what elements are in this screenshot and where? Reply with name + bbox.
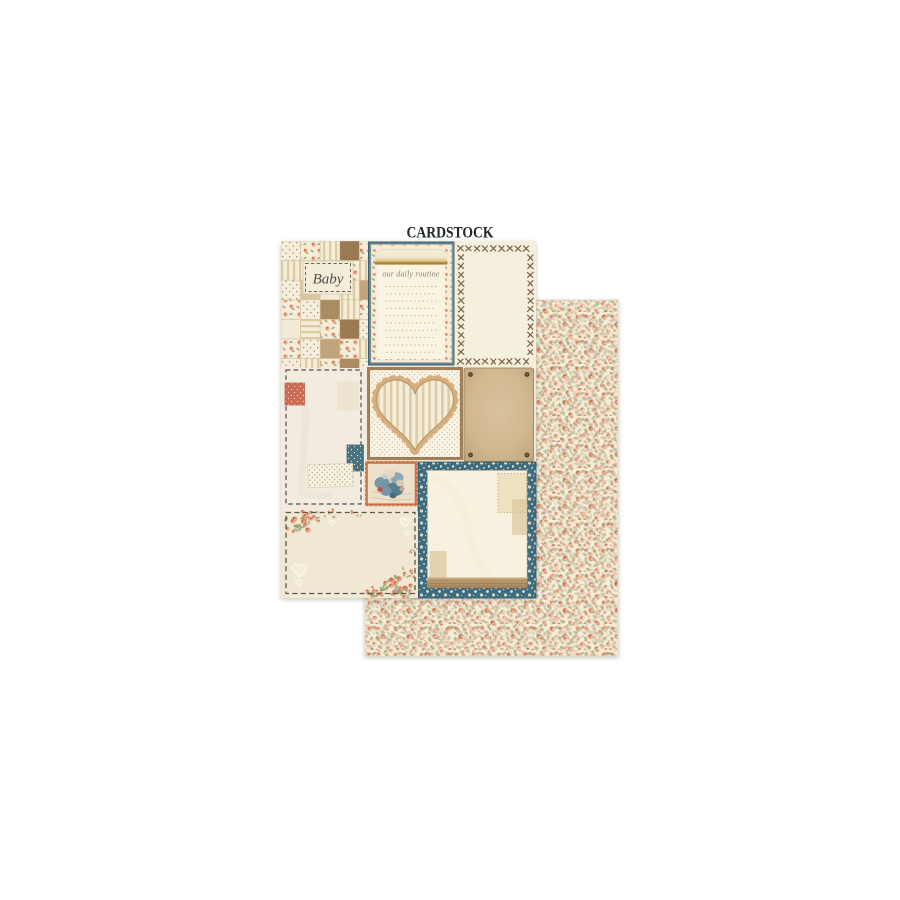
svg-text:Baby: Baby: [313, 272, 344, 288]
svg-text:CARDSTOCK: CARDSTOCK: [407, 225, 494, 242]
svg-text:our daily routine: our daily routine: [382, 270, 440, 279]
